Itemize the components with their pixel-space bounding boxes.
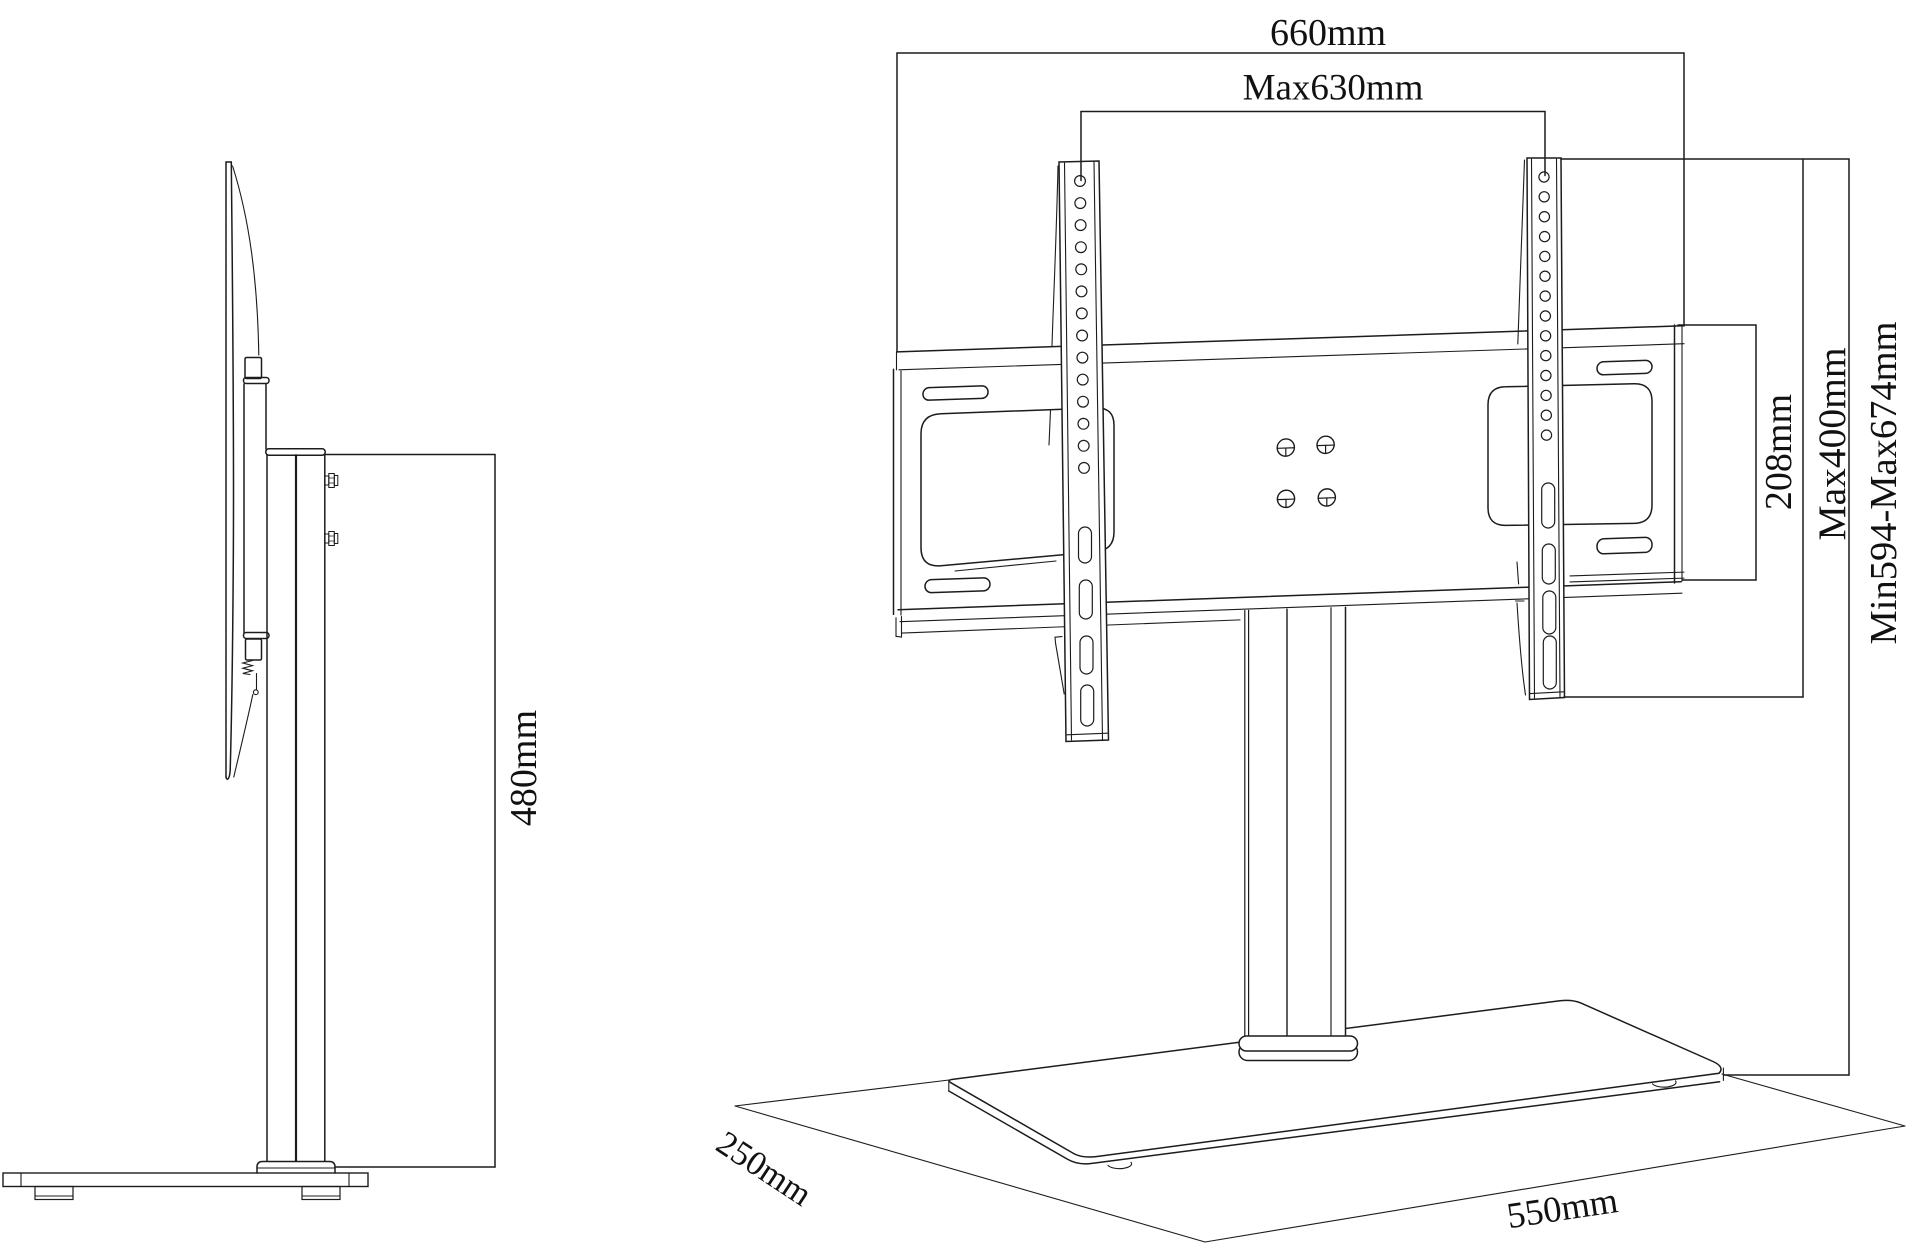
svg-text:480mm: 480mm <box>503 710 545 826</box>
svg-text:Max630mm: Max630mm <box>1243 68 1424 109</box>
svg-text:Max400mm: Max400mm <box>1810 347 1854 540</box>
svg-text:Min594-Max674mm: Min594-Max674mm <box>1863 321 1905 644</box>
svg-text:660mm: 660mm <box>1270 12 1386 54</box>
svg-text:208mm: 208mm <box>1758 394 1800 510</box>
